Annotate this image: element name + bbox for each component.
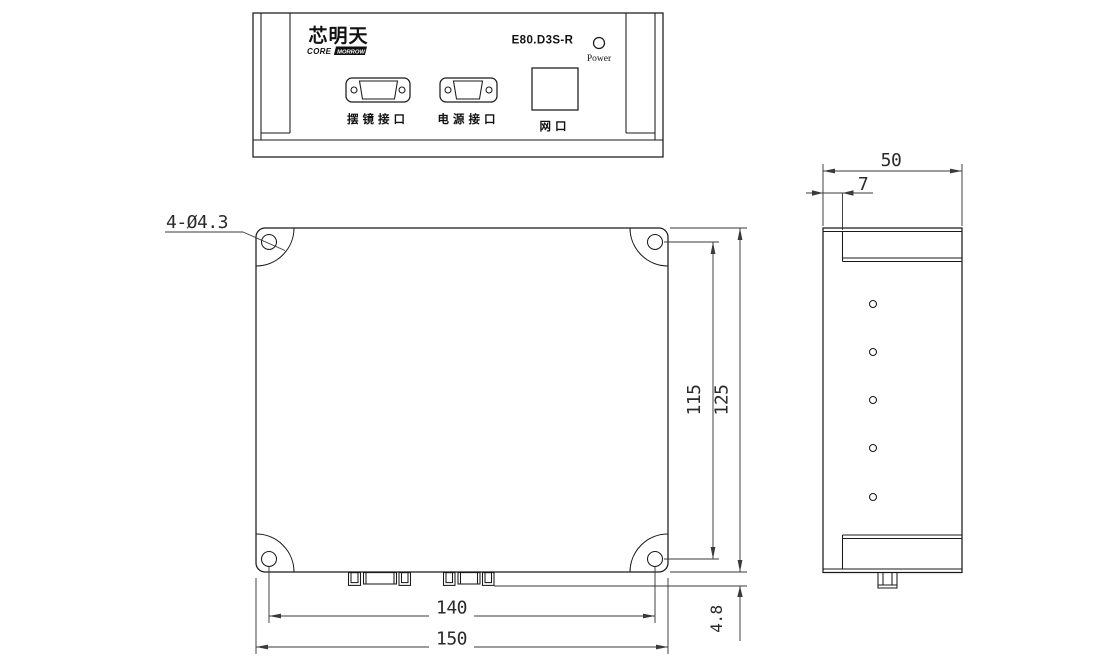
side-top-flange	[843, 232, 963, 262]
mounting-hole-bottom-left	[262, 552, 277, 567]
side-view-outline	[823, 228, 962, 573]
main-plate-view: 4-Ø4.3 115 125 4.8 140 150	[165, 212, 747, 654]
network-port	[532, 68, 578, 110]
main-plate-outline	[256, 228, 668, 572]
dim140-text: 140	[436, 598, 467, 619]
front-panel-view: 芯明天 CORE MORROW E80.D3S-R Power 摆镜接口 电源接…	[253, 13, 663, 157]
front-left-flange	[261, 13, 290, 140]
dim125-extension-lines	[670, 228, 747, 572]
mounting-hole-top-right	[648, 235, 663, 250]
dim48-text: 4.8	[707, 605, 726, 632]
dim125-text: 125	[712, 384, 733, 415]
dim115-text: 115	[684, 384, 705, 415]
dim50-extension-lines	[823, 164, 962, 226]
power-led-label: Power	[587, 54, 612, 64]
brand-logo-core-text: CORE	[307, 47, 332, 56]
model-number: E80.D3S-R	[512, 35, 574, 47]
technical-drawing-page: 芯明天 CORE MORROW E80.D3S-R Power 摆镜接口 电源接…	[0, 0, 1113, 667]
mounting-hole-top-left	[262, 235, 277, 250]
corner-pad-bottom-left	[256, 534, 294, 572]
dim7-arrow-left	[843, 190, 854, 196]
side-vent-holes	[870, 301, 877, 501]
dim50-text: 50	[881, 150, 902, 171]
dsub-connector-power	[440, 78, 497, 102]
connector2-label: 电源接口	[438, 112, 500, 126]
dsub-connector-mirror	[346, 78, 410, 102]
hole-callout-text: 4-Ø4.3	[166, 212, 228, 233]
network-port-label: 网口	[540, 120, 571, 133]
mounting-hole-bottom-right	[648, 552, 663, 567]
corner-pad-bottom-right	[630, 534, 668, 572]
bottom-connector-footprints	[349, 573, 495, 586]
dim48-arrow-up	[737, 586, 742, 597]
connector1-label: 摆镜接口	[347, 112, 409, 126]
side-view: 50 7	[806, 150, 962, 588]
dim7-text: 7	[858, 174, 868, 195]
power-led	[594, 38, 605, 49]
dim150-text: 150	[436, 629, 467, 650]
side-bottom-foot	[878, 573, 897, 589]
brand-logo-morrow-text: MORROW	[337, 49, 365, 55]
drawing-svg: 芯明天 CORE MORROW E80.D3S-R Power 摆镜接口 电源接…	[0, 0, 1113, 667]
front-right-flange	[626, 13, 655, 140]
brand-logo-text: 芯明天	[308, 24, 368, 47]
dim7-arrow-right	[812, 190, 823, 196]
side-bottom-flange	[843, 535, 963, 569]
